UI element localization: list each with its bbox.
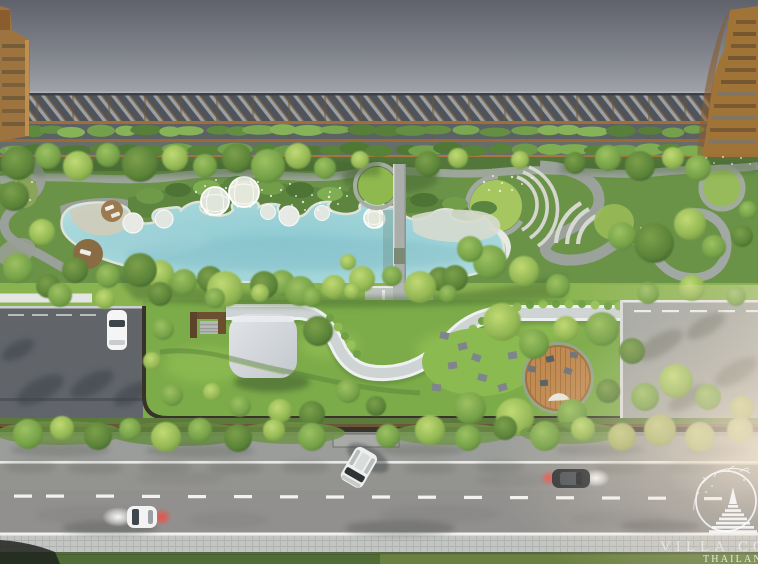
svg-text:VILLA CO: VILLA CO [660, 539, 758, 555]
svg-text:THAILAND: THAILAND [703, 554, 758, 564]
